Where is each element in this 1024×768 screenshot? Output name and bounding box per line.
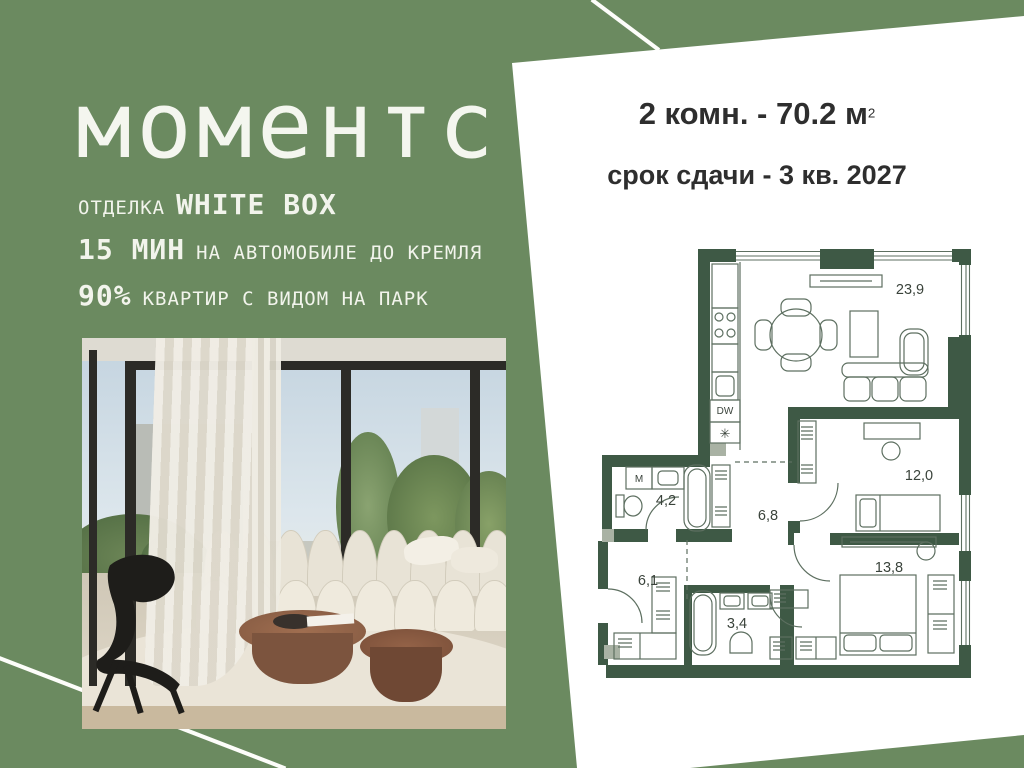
room-label-living: 23,9 bbox=[896, 282, 924, 298]
completion-date: срок сдачи - 3 кв. 2027 bbox=[555, 160, 959, 191]
apartment-title: 2 комн. - 70.2 м2 bbox=[555, 96, 959, 132]
feature-finish-value: WHITE BOX bbox=[176, 188, 337, 221]
room-label-bathroom: 4,2 bbox=[656, 493, 676, 509]
ad-banner: моментс ОТДЕЛКА WHITE BOX 15 МИН НА АВТО… bbox=[0, 0, 1024, 768]
photo-ceiling bbox=[82, 338, 506, 361]
room-label-bedroom-small: 12,0 bbox=[905, 468, 933, 484]
interior-photo bbox=[82, 338, 506, 729]
room-label-bathroom-guest: 3,4 bbox=[727, 616, 747, 632]
room-label-entry: 6,1 bbox=[638, 573, 658, 589]
diagonal-line-top bbox=[591, 0, 661, 52]
plan-shafts bbox=[602, 443, 726, 659]
plan-walls bbox=[598, 249, 971, 678]
door-opening bbox=[794, 533, 830, 545]
feature-drive-time-value: 15 МИН bbox=[78, 233, 185, 266]
feature-park-view-label: КВАРТИР С ВИДОМ НА ПАРК bbox=[143, 288, 429, 310]
photo-pillow bbox=[451, 547, 498, 572]
square-meter-sup: 2 bbox=[868, 106, 875, 121]
photo-lounge-chair bbox=[82, 553, 213, 717]
brand-logo: моментс bbox=[76, 80, 499, 172]
feature-drive-time: 15 МИН НА АВТОМОБИЛЕ ДО КРЕМЛЯ bbox=[78, 233, 482, 266]
dishwasher-label: DW bbox=[717, 406, 734, 417]
feature-park-view: 90% КВАРТИР С ВИДОМ НА ПАРК bbox=[78, 279, 429, 312]
room-label-bedroom-master: 13,8 bbox=[875, 560, 903, 576]
photo-curtain-fold bbox=[252, 338, 282, 643]
feature-drive-time-label: НА АВТОМОБИЛЕ ДО КРЕМЛЯ bbox=[196, 242, 482, 264]
feature-finish-label: ОТДЕЛКА bbox=[78, 197, 165, 219]
room-label-hall: 6,8 bbox=[758, 508, 778, 524]
apartment-title-text: 2 комн. - 70.2 м bbox=[639, 96, 868, 131]
feature-finish: ОТДЕЛКА WHITE BOX bbox=[78, 188, 337, 221]
feature-park-view-value: 90% bbox=[78, 279, 132, 312]
cooktop-symbol: ✳ bbox=[720, 426, 731, 441]
washer-label: М bbox=[635, 474, 643, 485]
floor-plan: 23,9 12,0 13,8 6,8 4,2 6,1 3,4 DW М ✳ bbox=[588, 245, 978, 685]
